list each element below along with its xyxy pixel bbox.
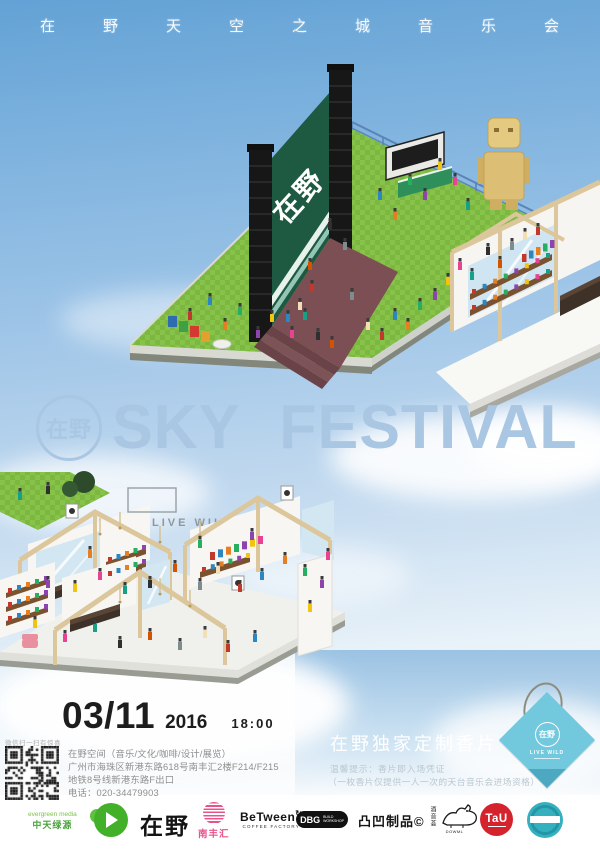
dbg-sub: BUILDWORKSHOP [323, 816, 344, 824]
main-title: SKY FESTIVAL [112, 391, 578, 462]
promo-note: 温馨提示：香片即入场凭证 [330, 762, 445, 775]
event-date: 03/11 2016 18:00 [62, 695, 275, 737]
speaker-tower-icon [327, 64, 354, 260]
logo-between-coffee: BeTween↻ COFFEE FACTORY [240, 809, 303, 829]
cat-illustration-icon [439, 803, 481, 829]
zaiye-badge-text: 在野 [46, 412, 92, 444]
teal-disc-icon [527, 802, 563, 838]
tag-rule [534, 758, 560, 759]
logo-evergreen-media: evergreen media 中天绿源 [28, 811, 77, 831]
dbg-badge: DBG BUILDWORKSHOP [296, 811, 348, 828]
market-island-illustration: LIVE WILD [0, 460, 360, 710]
venue-line: 广州市海珠区新港东路618号南丰汇2楼F214/F215 [68, 761, 279, 774]
robot-statue [478, 118, 530, 210]
logo-nanfenghui: 南丰汇 [198, 802, 230, 840]
date-year: 2016 [165, 712, 207, 734]
date-time: 18:00 [231, 716, 274, 731]
logo-green-play [94, 803, 128, 837]
venue-info: 在野空间（音乐/文化/咖啡/设计/展览） 广州市海珠区新港东路618号南丰汇2楼… [68, 748, 279, 800]
logo-cat-brand: 酒音荟 DOWML [428, 803, 481, 834]
logo-tau: TaU [480, 803, 513, 836]
cat-vertical-label: 酒音荟 [428, 803, 437, 829]
speaker-tower-icon [247, 144, 274, 342]
sign-frame [128, 488, 176, 512]
poster-top-title: 在野天空之城音乐会 [40, 15, 600, 36]
venue-line: 地铁8号线新港东路F出口 [68, 774, 279, 787]
concert-island-illustration: 在野 [0, 0, 600, 420]
tau-badge: TaU [480, 803, 513, 836]
tau-rule [488, 826, 506, 827]
tag-badge-text: 在野 [539, 729, 555, 740]
zaiye-badge-logo: 在野 [36, 395, 102, 461]
nanfenghui-label: 南丰汇 [198, 826, 230, 840]
sponsor-logo-row: evergreen media 中天绿源 在野 南丰汇 BeTween↻ COF… [0, 795, 600, 849]
logo-dbg: DBG BUILDWORKSHOP [296, 811, 348, 828]
venue-line: 在野空间（音乐/文化/咖啡/设计/展览） [68, 748, 279, 761]
tuao-label: 凸凹制品© [358, 811, 425, 830]
evergreen-line2: 中天绿源 [28, 818, 77, 831]
promo-title: 在野独家定制香片 [330, 730, 498, 756]
evergreen-line1: evergreen media [28, 811, 77, 818]
logo-zaiye: 在野 [140, 807, 190, 841]
qr-code [5, 746, 59, 800]
logo-teal-disc [527, 802, 563, 838]
promo-note: （一枚香片仅提供一人一次的天台音乐会进场资格） [328, 775, 540, 788]
between-sub: COFFEE FACTORY [240, 824, 303, 829]
play-icon [94, 803, 128, 837]
tag-content: 在野 LIVE WILD [513, 706, 581, 774]
nanfenghui-icon [203, 802, 225, 824]
cat-caption: DOWML [428, 829, 481, 834]
zaiye-badge-logo: 在野 [535, 722, 560, 747]
between-label: BeTween↻ [240, 809, 303, 824]
logo-tuao: 凸凹制品© [358, 811, 425, 830]
tag-label: LIVE WILD [530, 750, 564, 756]
date-day: 03/11 [62, 695, 155, 737]
tau-label: TaU [485, 813, 507, 825]
dbg-label: DBG [300, 815, 320, 825]
zaiye-label: 在野 [140, 807, 190, 841]
